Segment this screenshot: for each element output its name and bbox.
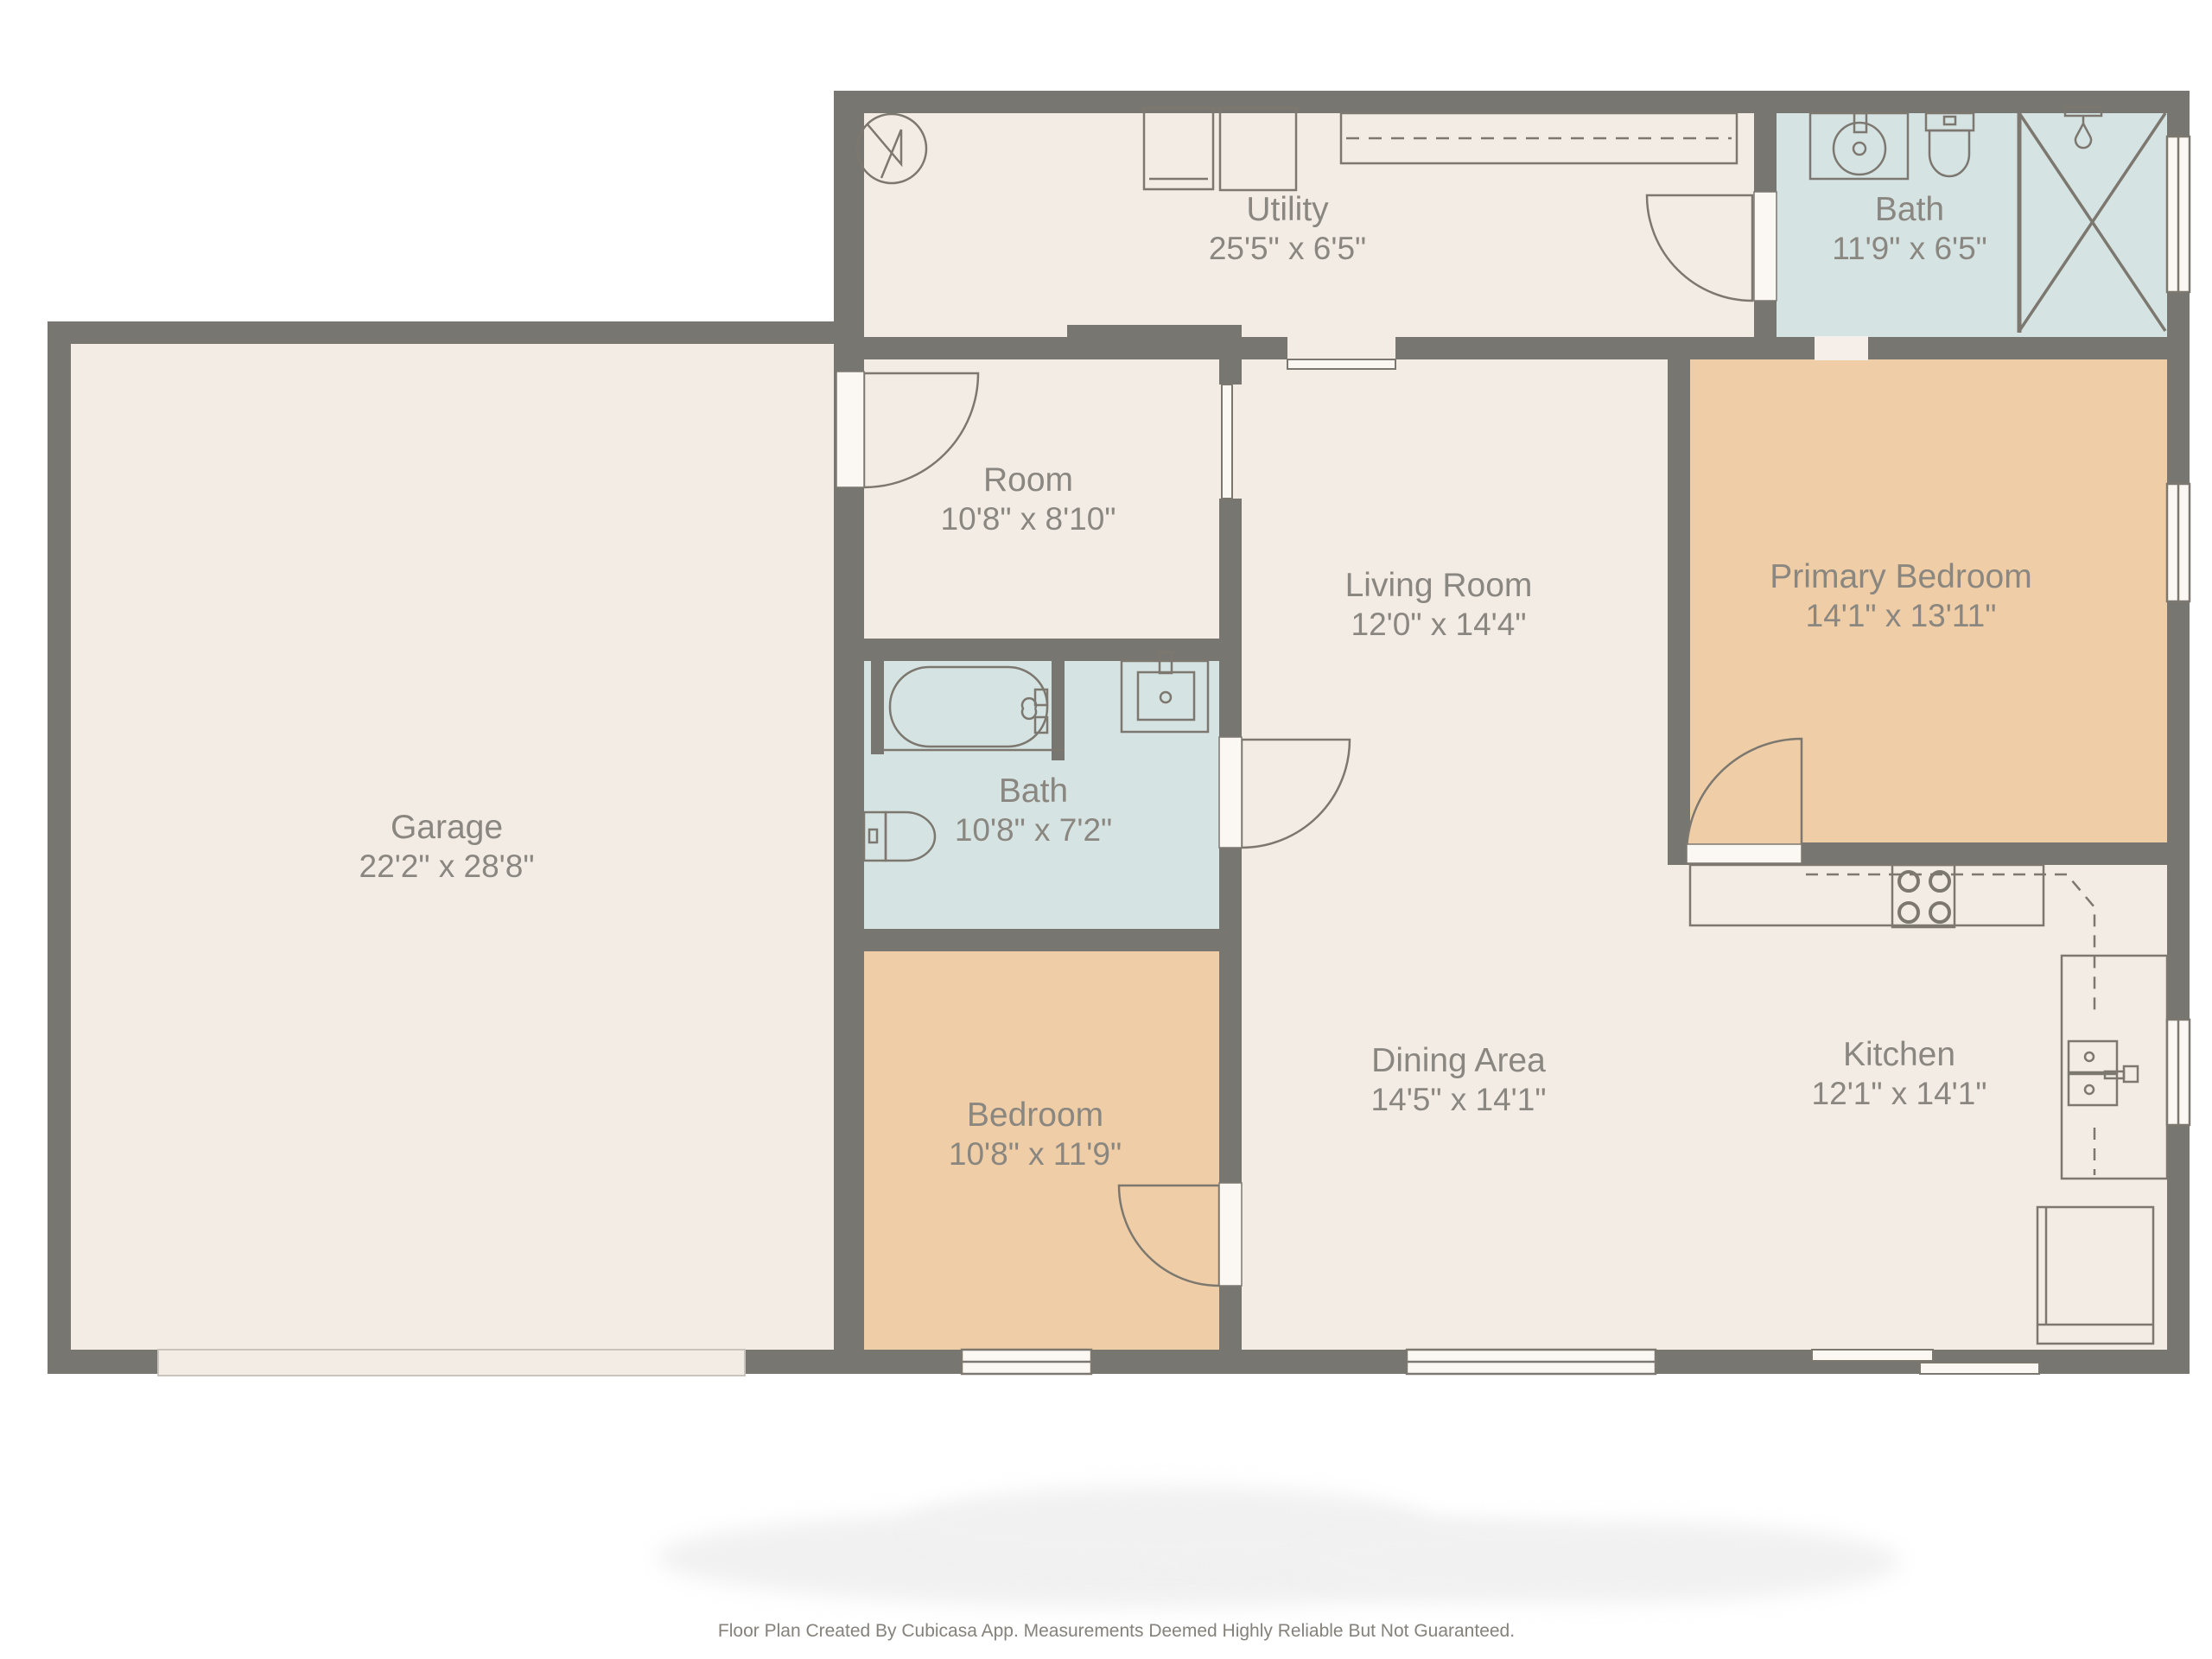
room-name: Room (941, 461, 1116, 500)
room-dims: 14'5" x 14'1" (1371, 1081, 1547, 1119)
room-dims: 25'5" x 6'5" (1209, 230, 1366, 268)
window-icon (2167, 137, 2190, 292)
washer-icon (1144, 108, 1213, 189)
toilet-icon (864, 812, 935, 861)
kitchen-sink-icon (2069, 1041, 2138, 1105)
room-name: Bath (955, 772, 1112, 811)
door-swing-icon (1647, 192, 1777, 301)
utility-counter-icon (1341, 113, 1737, 163)
room-label-bath-top: Bath 11'9" x 6'5" (1832, 190, 1987, 268)
window-icon (2167, 484, 2190, 601)
sliding-door-icon (1812, 1350, 2039, 1374)
door-swing-icon (1687, 739, 1802, 863)
room-name: Dining Area (1371, 1041, 1547, 1081)
bathroom-sink-icon (1122, 652, 1208, 732)
room-name: Bath (1832, 190, 1987, 230)
room-dims: 10'8" x 8'10" (941, 500, 1116, 538)
bathroom-sink-icon (1810, 113, 1908, 179)
room-dims: 10'8" x 7'2" (955, 811, 1112, 849)
door-swing-icon (1219, 737, 1350, 848)
room-label-living: Living Room 12'0" x 14'4" (1345, 566, 1533, 644)
window-icon (2167, 1020, 2190, 1125)
dryer-icon (1220, 108, 1296, 190)
toilet-icon (1926, 113, 1974, 176)
room-name: Utility (1209, 190, 1366, 230)
room-dims: 14'1" x 13'11" (1770, 597, 2031, 635)
room-name: Living Room (1345, 566, 1533, 606)
footer-disclaimer: Floor Plan Created By Cubicasa App. Meas… (718, 1621, 1515, 1642)
kitchen-counter (1690, 865, 2167, 1179)
wall-opening-icon (1219, 385, 1242, 499)
room-dims: 11'9" x 6'5" (1832, 230, 1987, 268)
room-label-garage: Garage 22'2" x 28'8" (359, 808, 535, 886)
room-dims: 12'1" x 14'1" (1812, 1075, 1987, 1113)
refrigerator-icon (2037, 1207, 2153, 1344)
wall-opening-icon (1815, 336, 1868, 360)
room-name: Bedroom (949, 1096, 1122, 1135)
bathtub-icon (871, 661, 1065, 760)
room-name: Primary Bedroom (1770, 557, 2031, 597)
door-swing-icon (1119, 1183, 1242, 1286)
room-dims: 22'2" x 28'8" (359, 848, 535, 886)
wall-opening-icon (1287, 335, 1395, 369)
floor-plan-canvas: Garage 22'2" x 28'8" Utility 25'5" x 6'5… (0, 0, 2212, 1659)
room-name: Kitchen (1812, 1035, 1987, 1075)
watermark-blob (1296, 1521, 1901, 1603)
garage-door-icon (158, 1350, 745, 1376)
room-label-kitchen: Kitchen 12'1" x 14'1" (1812, 1035, 1987, 1113)
window-icon (1407, 1350, 1656, 1374)
water-heater-icon (857, 114, 926, 183)
room-label-bath-mid: Bath 10'8" x 7'2" (955, 772, 1112, 849)
room-dims: 12'0" x 14'4" (1345, 606, 1533, 644)
room-name: Garage (359, 808, 535, 848)
room-label-primary-bedroom: Primary Bedroom 14'1" x 13'11" (1770, 557, 2031, 635)
room-label-dining: Dining Area 14'5" x 14'1" (1371, 1041, 1547, 1119)
stove-icon (1892, 865, 1955, 927)
window-icon (962, 1350, 1091, 1374)
room-dims: 10'8" x 11'9" (949, 1135, 1122, 1173)
room-label-bedroom: Bedroom 10'8" x 11'9" (949, 1096, 1122, 1173)
room-label-room: Room 10'8" x 8'10" (941, 461, 1116, 538)
shower-icon (2019, 107, 2165, 333)
room-label-utility: Utility 25'5" x 6'5" (1209, 190, 1366, 268)
